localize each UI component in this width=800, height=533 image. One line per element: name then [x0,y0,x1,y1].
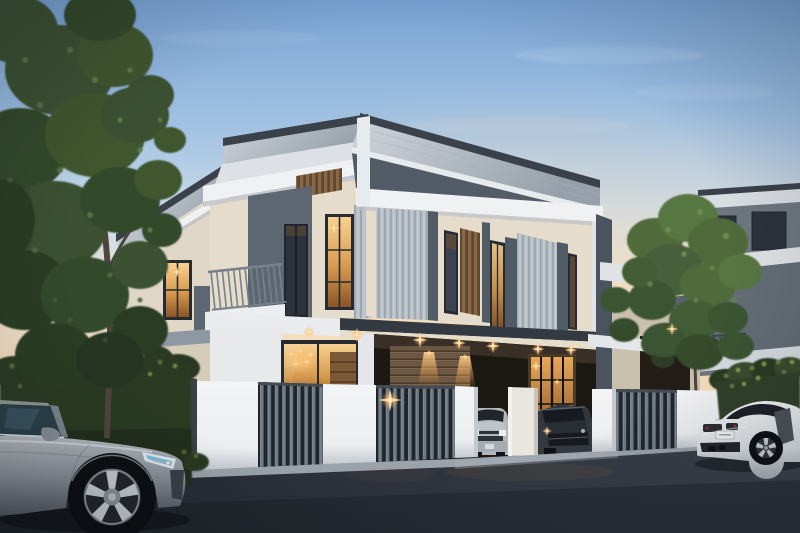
scene [0,0,800,533]
scene-render [0,0,800,533]
vignette [0,0,800,533]
